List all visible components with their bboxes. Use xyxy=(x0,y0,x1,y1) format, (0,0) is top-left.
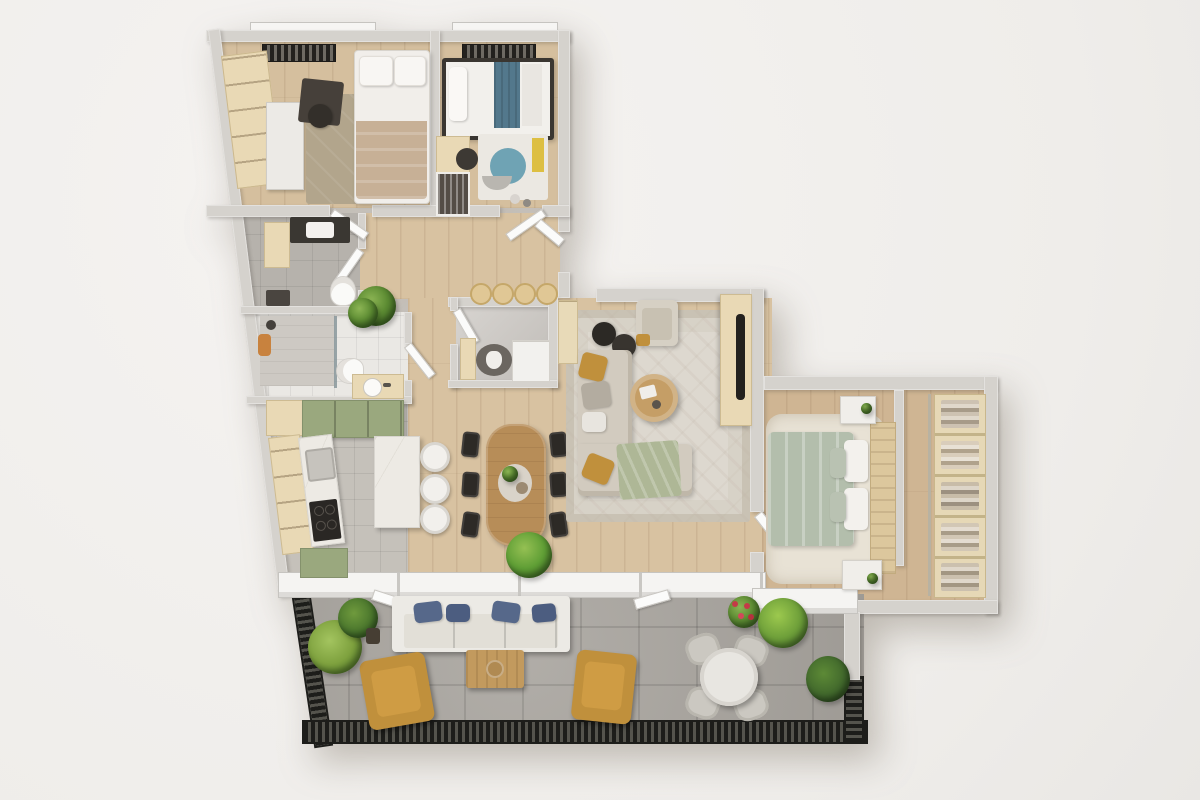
headboard-panel xyxy=(870,422,896,574)
wall-master-bottom xyxy=(854,600,998,614)
mustard-armchair xyxy=(358,651,435,731)
wc-floor-mat xyxy=(266,290,290,306)
toys xyxy=(510,194,520,204)
round-stool xyxy=(492,283,514,305)
blue-pillow xyxy=(531,603,556,623)
burner xyxy=(326,519,337,530)
sage-throw xyxy=(616,440,682,500)
wall-tv xyxy=(736,314,745,400)
double-bed xyxy=(354,50,430,204)
teal-blanket xyxy=(494,62,520,128)
balcony-green-bush xyxy=(758,598,808,648)
centerpiece-plant xyxy=(502,466,518,482)
burner xyxy=(315,520,326,531)
windowsill-plant xyxy=(506,532,552,578)
outdoor-coffee-table xyxy=(466,650,524,688)
wall-bathroom-right-upper xyxy=(404,312,412,344)
wall-top xyxy=(206,30,570,42)
radiator-bedroom1 xyxy=(262,44,336,62)
nightstand-plant xyxy=(861,403,872,414)
nightstand-plant xyxy=(867,573,878,584)
outdoor-sofa xyxy=(392,596,570,652)
closet-shelving xyxy=(934,394,986,598)
bathroom-vanity xyxy=(352,374,404,399)
stool-row xyxy=(470,283,556,303)
blue-pillow xyxy=(491,600,522,624)
kids-desk-chair xyxy=(456,148,478,170)
faucet xyxy=(383,383,391,387)
folded-clothes xyxy=(941,400,979,428)
ladder-shelf xyxy=(558,300,578,364)
round-stool xyxy=(536,283,558,305)
armchair xyxy=(636,300,678,346)
beige-blanket xyxy=(356,121,427,199)
sofa-pillow-gray xyxy=(580,380,611,410)
coffee-table-bowl xyxy=(652,400,661,409)
round-outdoor-table xyxy=(700,648,758,706)
wc-cabinet xyxy=(264,222,290,268)
bed-pillow xyxy=(359,56,393,86)
dining-table xyxy=(486,424,546,546)
bar-stool xyxy=(420,504,450,534)
nightstand xyxy=(840,396,876,424)
master-pillow-sage xyxy=(830,448,846,478)
kids-bed xyxy=(442,58,554,140)
balcony-dark-plant xyxy=(806,656,850,702)
centerpiece-bowl xyxy=(516,482,528,494)
burner xyxy=(313,505,324,516)
dining-chair xyxy=(461,431,481,458)
bar-stool xyxy=(420,442,450,472)
blue-pillow xyxy=(446,604,470,622)
red-flower-plant xyxy=(728,596,760,628)
pet-bed xyxy=(476,344,512,376)
cooktop xyxy=(309,499,342,542)
kitchen-island xyxy=(374,436,420,528)
armchair-seat-cushion xyxy=(370,665,421,718)
white-blanket-fold xyxy=(522,64,542,126)
master-pillow-white xyxy=(844,488,868,530)
apartment-render xyxy=(0,0,1200,800)
dining-chair xyxy=(461,471,480,497)
table-tray xyxy=(486,660,504,678)
red-blossom xyxy=(732,601,738,607)
armchair-yellow-throw xyxy=(636,334,650,346)
coffee-table-tray xyxy=(639,384,657,400)
wc-vanity xyxy=(290,217,350,243)
kitchen-sink xyxy=(305,447,337,482)
shower-glass-screen xyxy=(334,316,337,388)
folded-clothes xyxy=(941,563,979,591)
dining-chair xyxy=(460,511,480,538)
pet xyxy=(486,351,502,369)
floor-plan-canvas xyxy=(0,0,1200,800)
bedroom1-desk-chair xyxy=(308,104,332,128)
master-pillow-sage xyxy=(830,492,846,522)
open-wardrobe xyxy=(436,172,470,216)
wall-wc-bathroom-divider xyxy=(240,306,362,314)
closet-glass-partition xyxy=(928,394,931,596)
folded-clothes xyxy=(941,482,979,510)
sofa-pillow-white xyxy=(582,412,606,432)
blue-pillow xyxy=(413,600,443,623)
mustard-armchair xyxy=(571,649,638,725)
balcony-small-pot xyxy=(366,628,380,644)
orange-towel xyxy=(258,334,271,356)
round-sink xyxy=(363,378,382,397)
nightstand xyxy=(842,560,882,590)
rug-yellow-stripe xyxy=(532,138,544,172)
shower-head xyxy=(266,320,276,330)
wall-living-right-upper xyxy=(750,288,764,512)
bar-stool xyxy=(420,474,450,504)
folded-clothes xyxy=(941,523,979,551)
bathroom-plant xyxy=(348,298,378,328)
wall-bedrooms-bottom-a xyxy=(206,205,330,217)
kids-pillow xyxy=(449,67,467,121)
wc-sink xyxy=(306,222,334,238)
base-cabinet-sage xyxy=(300,548,348,578)
upper-shelf-cream xyxy=(266,400,304,436)
round-stool xyxy=(470,283,492,305)
wall-hall-right-upper xyxy=(558,30,570,232)
rug-gray-arc xyxy=(482,176,512,190)
wall-master-right xyxy=(984,376,998,614)
bed-pillow xyxy=(394,56,426,86)
armchair-seat-cushion xyxy=(581,661,626,711)
upper-cabinets-sage xyxy=(302,400,404,438)
white-drawer-unit xyxy=(512,340,550,382)
wall-master-top xyxy=(764,376,996,390)
table-centerpiece xyxy=(498,464,532,502)
coffee-table xyxy=(630,374,678,422)
master-pillow-white xyxy=(844,440,868,482)
kids-rug xyxy=(478,134,548,200)
utility-bench xyxy=(460,338,476,380)
round-stool xyxy=(514,283,536,305)
burner xyxy=(324,504,335,515)
folded-clothes xyxy=(941,441,979,469)
wall-hall-right-lower xyxy=(558,272,570,298)
